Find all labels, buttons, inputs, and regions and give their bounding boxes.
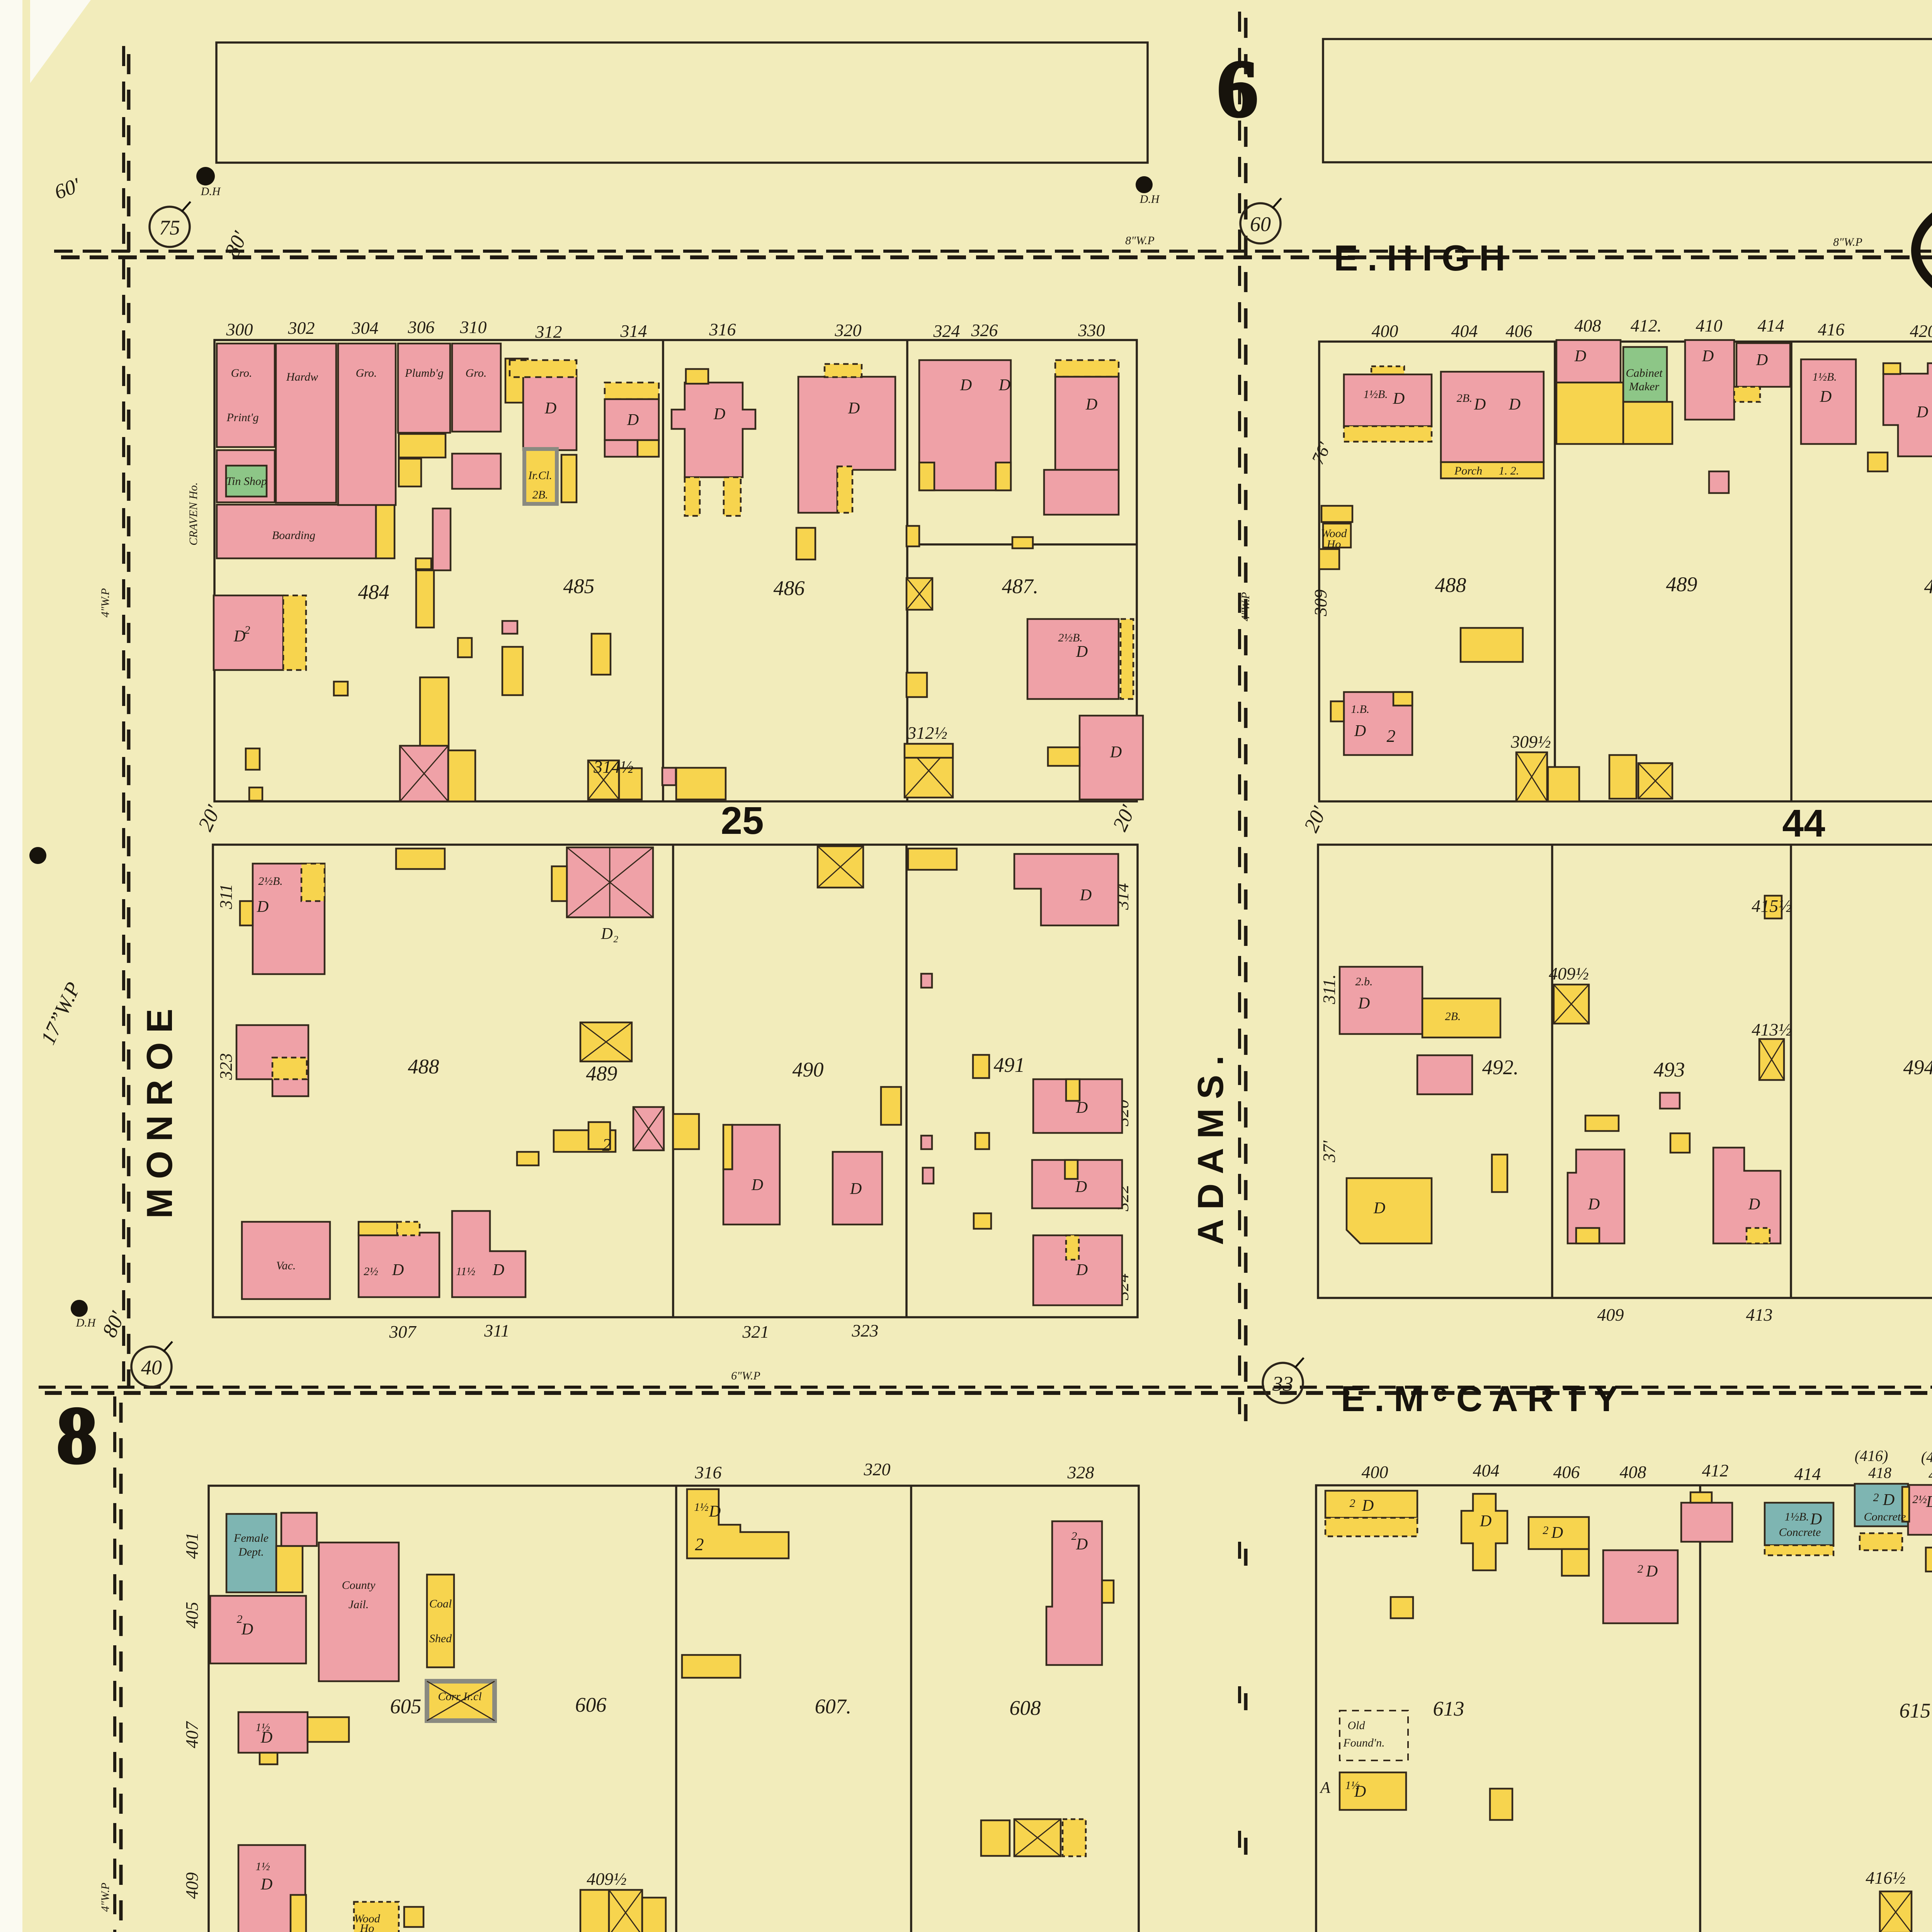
svg-text:2: 2 — [1543, 1524, 1549, 1537]
svg-text:D: D — [1076, 1099, 1088, 1117]
svg-text:320: 320 — [835, 320, 862, 340]
svg-text:414: 414 — [1794, 1464, 1821, 1484]
svg-text:312: 312 — [535, 322, 562, 342]
svg-text:D: D — [1509, 396, 1520, 413]
svg-text:400: 400 — [1362, 1462, 1388, 1482]
svg-text:2½B.: 2½B. — [1058, 631, 1082, 644]
svg-text:D: D — [257, 898, 269, 916]
svg-text:2.b.: 2.b. — [1355, 975, 1373, 988]
svg-text:311: 311 — [216, 884, 236, 910]
svg-text:488: 488 — [408, 1055, 439, 1078]
svg-text:D: D — [260, 1876, 272, 1893]
svg-text:490: 490 — [1924, 575, 1932, 598]
svg-text:615: 615 — [1900, 1699, 1931, 1722]
svg-text:323: 323 — [852, 1321, 879, 1340]
svg-text:2B.: 2B. — [532, 488, 548, 501]
svg-text:412: 412 — [1702, 1461, 1729, 1480]
svg-text:Ho: Ho — [360, 1922, 374, 1932]
svg-text:D: D — [1076, 1536, 1088, 1553]
svg-text:44: 44 — [1782, 802, 1825, 845]
svg-text:326: 326 — [971, 320, 998, 340]
svg-text:Old: Old — [1348, 1719, 1366, 1732]
svg-text:1½: 1½ — [255, 1860, 270, 1873]
svg-text:D: D — [627, 411, 639, 429]
svg-text:415½: 415½ — [1752, 896, 1792, 916]
svg-text:D.H: D.H — [201, 185, 221, 198]
svg-text:Gro.: Gro. — [231, 367, 252, 379]
svg-text:Hardw: Hardw — [286, 371, 318, 383]
svg-text:D: D — [1756, 351, 1768, 369]
svg-text:D: D — [1926, 1493, 1932, 1511]
svg-text:486: 486 — [774, 577, 805, 600]
svg-text:Gro.: Gro. — [466, 367, 487, 379]
svg-text:413: 413 — [1746, 1305, 1773, 1325]
svg-text:414: 414 — [1758, 316, 1784, 335]
svg-text:2½B.: 2½B. — [258, 875, 282, 888]
svg-text:1½B.: 1½B. — [1363, 388, 1388, 401]
svg-text:D: D — [998, 376, 1010, 394]
svg-text:Cabinet: Cabinet — [1626, 367, 1663, 379]
svg-text:306: 306 — [408, 317, 435, 337]
svg-text:D: D — [1474, 396, 1486, 413]
svg-text:607.: 607. — [815, 1695, 852, 1718]
svg-text:416: 416 — [1818, 320, 1845, 339]
svg-text:D: D — [1646, 1563, 1658, 1580]
svg-text:D: D — [1362, 1497, 1374, 1515]
svg-text:323: 323 — [216, 1053, 236, 1080]
svg-text:D: D — [1354, 722, 1366, 740]
svg-text:324: 324 — [933, 321, 960, 341]
svg-text:Shed: Shed — [429, 1632, 452, 1645]
svg-text:310: 310 — [460, 317, 487, 337]
svg-text:D: D — [1393, 390, 1405, 408]
svg-text:4"W.P: 4"W.P — [99, 588, 112, 617]
svg-text:304: 304 — [352, 318, 379, 338]
svg-text:Vac.: Vac. — [276, 1259, 296, 1272]
svg-text:D: D — [1574, 347, 1586, 365]
svg-text:37': 37' — [1319, 1140, 1339, 1163]
svg-text:Tin Shop: Tin Shop — [226, 475, 267, 488]
svg-text:309½: 309½ — [1510, 732, 1551, 752]
svg-text:2: 2 — [1873, 1491, 1879, 1504]
svg-text:309: 309 — [1311, 590, 1330, 617]
svg-text:Concrete: Concrete — [1864, 1510, 1906, 1523]
svg-text:2: 2 — [1387, 726, 1396, 746]
svg-text:D: D — [1076, 1261, 1088, 1279]
svg-text:75: 75 — [159, 216, 180, 239]
svg-text:316: 316 — [709, 320, 736, 339]
svg-text:409½: 409½ — [587, 1869, 627, 1889]
svg-text:1½B.: 1½B. — [1784, 1510, 1809, 1523]
svg-text:314: 314 — [620, 321, 647, 341]
svg-text:D: D — [1820, 388, 1832, 406]
svg-text:D: D — [1358, 995, 1370, 1012]
svg-text:D: D — [233, 628, 245, 645]
svg-text:Ho: Ho — [1327, 538, 1341, 551]
svg-text:605: 605 — [390, 1695, 422, 1718]
svg-text:11½: 11½ — [456, 1265, 475, 1278]
svg-text:406: 406 — [1506, 321, 1532, 341]
svg-text:D.H: D.H — [76, 1316, 97, 1329]
svg-text:420: 420 — [1910, 321, 1932, 341]
svg-text:418: 418 — [1868, 1464, 1891, 1481]
svg-text:D: D — [1702, 347, 1714, 365]
svg-text:Maker: Maker — [1629, 380, 1660, 393]
svg-text:6"W.P: 6"W.P — [731, 1369, 760, 1382]
svg-text:400: 400 — [1372, 321, 1398, 341]
svg-text:321: 321 — [742, 1322, 769, 1342]
svg-text:2: 2 — [695, 1534, 704, 1554]
svg-text:320: 320 — [864, 1459, 891, 1479]
svg-text:300: 300 — [226, 320, 253, 339]
svg-text:D: D — [1916, 403, 1928, 421]
svg-text:409: 409 — [182, 1872, 202, 1899]
svg-text:D: D — [241, 1621, 253, 1638]
svg-text:6: 6 — [1218, 44, 1258, 134]
svg-text:County: County — [342, 1579, 376, 1592]
svg-text:2: 2 — [602, 1135, 611, 1155]
svg-text:491: 491 — [994, 1053, 1025, 1077]
svg-text:487.: 487. — [1002, 575, 1039, 598]
svg-text:Female: Female — [233, 1532, 269, 1544]
svg-text:4"W.P: 4"W.P — [1239, 592, 1252, 621]
svg-text:Ir.Cl.: Ir.Cl. — [528, 469, 552, 482]
svg-text:416½: 416½ — [1866, 1868, 1906, 1888]
svg-text:CRAVEN Ho.: CRAVEN Ho. — [187, 482, 200, 546]
svg-text:406: 406 — [1553, 1462, 1580, 1482]
svg-text:Dept.: Dept. — [238, 1546, 264, 1558]
svg-text:328: 328 — [1067, 1463, 1094, 1482]
svg-text:2: 2 — [1350, 1497, 1355, 1510]
svg-text:Gro.: Gro. — [356, 367, 377, 379]
svg-text:D: D — [492, 1261, 504, 1279]
svg-text:Print'g: Print'g — [226, 411, 259, 424]
svg-text:E.McCARTY: E.McCARTY — [1341, 1378, 1628, 1419]
svg-text:484: 484 — [358, 580, 389, 604]
svg-text:413½: 413½ — [1752, 1020, 1792, 1039]
svg-text:60: 60 — [1250, 213, 1271, 236]
svg-text:D: D — [713, 405, 725, 423]
svg-text:D: D — [1085, 396, 1097, 413]
svg-text:606: 606 — [575, 1693, 607, 1716]
svg-text:311.: 311. — [1319, 974, 1339, 1004]
svg-text:Coal: Coal — [429, 1597, 452, 1610]
svg-text:D: D — [1373, 1199, 1385, 1217]
svg-text:D: D — [260, 1729, 272, 1747]
svg-text:489: 489 — [586, 1062, 617, 1085]
svg-text:(418): (418) — [1921, 1448, 1932, 1466]
svg-text:4"W.P: 4"W.P — [99, 1883, 112, 1912]
svg-text:409: 409 — [1597, 1305, 1624, 1325]
svg-text:Plumb'g: Plumb'g — [405, 367, 444, 379]
svg-text:Jail.: Jail. — [349, 1598, 369, 1611]
svg-text:1. 2.: 1. 2. — [1499, 464, 1519, 477]
svg-text:2: 2 — [1638, 1563, 1643, 1575]
svg-text:314½: 314½ — [593, 757, 634, 777]
svg-text:D: D — [1354, 1783, 1366, 1801]
svg-text:D₂: D₂ — [601, 925, 619, 943]
svg-text:1½B.: 1½B. — [1812, 371, 1837, 383]
svg-text:Found'n.: Found'n. — [1343, 1736, 1384, 1749]
svg-text:D: D — [850, 1180, 862, 1198]
svg-text:312½: 312½ — [907, 723, 947, 743]
svg-text:Concrete: Concrete — [1779, 1526, 1821, 1539]
svg-text:613: 613 — [1433, 1697, 1464, 1720]
svg-text:ADAMS.: ADAMS. — [1190, 1046, 1231, 1245]
svg-text:D: D — [1110, 743, 1122, 761]
svg-text:2B.: 2B. — [1445, 1010, 1461, 1023]
svg-text:405: 405 — [182, 1602, 202, 1629]
svg-text:404: 404 — [1451, 321, 1478, 341]
svg-text:307: 307 — [389, 1322, 417, 1342]
svg-text:492.: 492. — [1482, 1056, 1519, 1079]
svg-text:2½: 2½ — [364, 1265, 378, 1278]
svg-text:D: D — [709, 1503, 721, 1520]
svg-text:494: 494 — [1903, 1056, 1932, 1079]
svg-text:302: 302 — [288, 318, 315, 338]
svg-text:D: D — [1076, 643, 1088, 661]
svg-text:A: A — [1319, 1779, 1330, 1797]
svg-text:Corr Ir.cl: Corr Ir.cl — [438, 1690, 481, 1703]
svg-text:1½: 1½ — [694, 1501, 709, 1514]
svg-text:8"W.P: 8"W.P — [1833, 236, 1862, 248]
svg-text:330: 330 — [1078, 320, 1105, 340]
svg-text:409½: 409½ — [1549, 964, 1589, 983]
svg-text:404: 404 — [1473, 1461, 1500, 1480]
svg-text:485: 485 — [563, 575, 595, 598]
svg-text:E.HIGH: E.HIGH — [1334, 238, 1515, 278]
svg-text:D: D — [751, 1176, 763, 1194]
svg-text:412.: 412. — [1631, 316, 1662, 335]
svg-text:608: 608 — [1010, 1696, 1041, 1719]
svg-text:407: 407 — [182, 1721, 202, 1748]
svg-text:25: 25 — [721, 799, 764, 842]
svg-text:D: D — [1551, 1524, 1563, 1542]
svg-text:D: D — [1080, 886, 1092, 904]
svg-text:D: D — [1075, 1178, 1087, 1196]
svg-text:311: 311 — [484, 1321, 510, 1340]
svg-text:2½: 2½ — [1912, 1493, 1927, 1506]
svg-text:408: 408 — [1620, 1462, 1646, 1482]
svg-text:33: 33 — [1272, 1372, 1293, 1395]
svg-text:489: 489 — [1666, 573, 1697, 596]
svg-text:1.B.: 1.B. — [1351, 703, 1369, 716]
svg-text:40: 40 — [141, 1356, 162, 1379]
svg-text:D: D — [1883, 1491, 1895, 1509]
svg-text:488: 488 — [1435, 573, 1466, 597]
svg-text:D: D — [848, 400, 860, 417]
svg-text:Porch: Porch — [1454, 464, 1482, 477]
svg-text:8"W.P: 8"W.P — [1125, 234, 1155, 247]
svg-text:D.H: D.H — [1139, 193, 1160, 206]
svg-text:D: D — [960, 376, 972, 394]
svg-text:D: D — [392, 1261, 404, 1279]
svg-text:8: 8 — [57, 1391, 97, 1480]
svg-text:(416): (416) — [1855, 1447, 1888, 1464]
svg-text:D: D — [1748, 1196, 1760, 1213]
svg-text:420: 420 — [1929, 1466, 1932, 1483]
svg-text:D: D — [1588, 1196, 1600, 1213]
svg-text:Boarding: Boarding — [272, 529, 315, 542]
svg-text:490: 490 — [793, 1058, 824, 1081]
svg-text:2B.: 2B. — [1457, 392, 1473, 405]
svg-text:D: D — [1480, 1512, 1492, 1530]
svg-text:401: 401 — [182, 1532, 202, 1559]
svg-text:316: 316 — [695, 1463, 722, 1482]
svg-text:410: 410 — [1696, 316, 1723, 335]
svg-text:493: 493 — [1654, 1058, 1685, 1081]
svg-text:408: 408 — [1575, 316, 1601, 335]
svg-text:MONROE: MONROE — [139, 1000, 180, 1219]
svg-text:D: D — [544, 400, 556, 417]
